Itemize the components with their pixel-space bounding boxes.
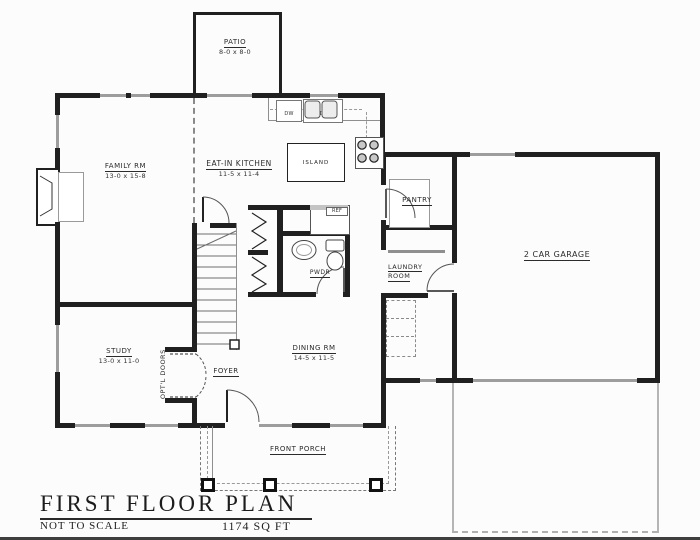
floor-plan: DW DISP ISLAND REF (0, 0, 700, 540)
powder-sink (292, 241, 316, 260)
optional-doors-label: OPT'L DOORS (159, 344, 167, 404)
firebox (40, 176, 52, 216)
room-label-powder: PWDR (300, 269, 340, 278)
room-label-study: STUDY 13-0 x 11-0 (88, 347, 150, 366)
bifold-closet-doors (252, 257, 266, 292)
sink-bowl (305, 101, 320, 118)
toilet-tank (326, 240, 344, 251)
room-label-porch: FRONT PORCH (246, 445, 350, 455)
stair-treads (197, 234, 236, 344)
plan-title: FIRST FLOOR PLAN (40, 491, 297, 517)
scale-note: NOT TO SCALE (40, 520, 129, 532)
room-label-kitchen: EAT-IN KITCHEN 11-5 x 11-4 (193, 159, 285, 178)
room-label-patio: PATIO 8-0 x 8-0 (200, 38, 270, 57)
door-swing-arc (203, 197, 229, 223)
sink-bowl (322, 101, 337, 118)
area-note: 1174 SQ FT (222, 519, 291, 534)
stair-newel-post (230, 340, 239, 349)
room-label-family: FAMILY RM 13-0 x 15-8 (88, 162, 163, 181)
toilet-bowl (327, 252, 343, 270)
plan-linework-layer (0, 0, 700, 540)
front-door-swing-arc (227, 390, 259, 422)
optional-door-swing-arc (196, 375, 206, 397)
room-label-garage: 2 CAR GARAGE (502, 250, 612, 261)
stove-burner (358, 154, 366, 162)
room-label-laundry: LAUNDRY ROOM (388, 263, 440, 282)
room-label-dining: DINING RM 14-5 x 11-5 (278, 344, 350, 363)
stove-burner (370, 154, 378, 162)
room-label-pantry: PANTRY (392, 196, 442, 206)
room-label-foyer: FOYER (200, 367, 252, 377)
stove-burner (370, 141, 378, 149)
bifold-closet-doors (252, 213, 266, 249)
stove-burner (358, 141, 366, 149)
